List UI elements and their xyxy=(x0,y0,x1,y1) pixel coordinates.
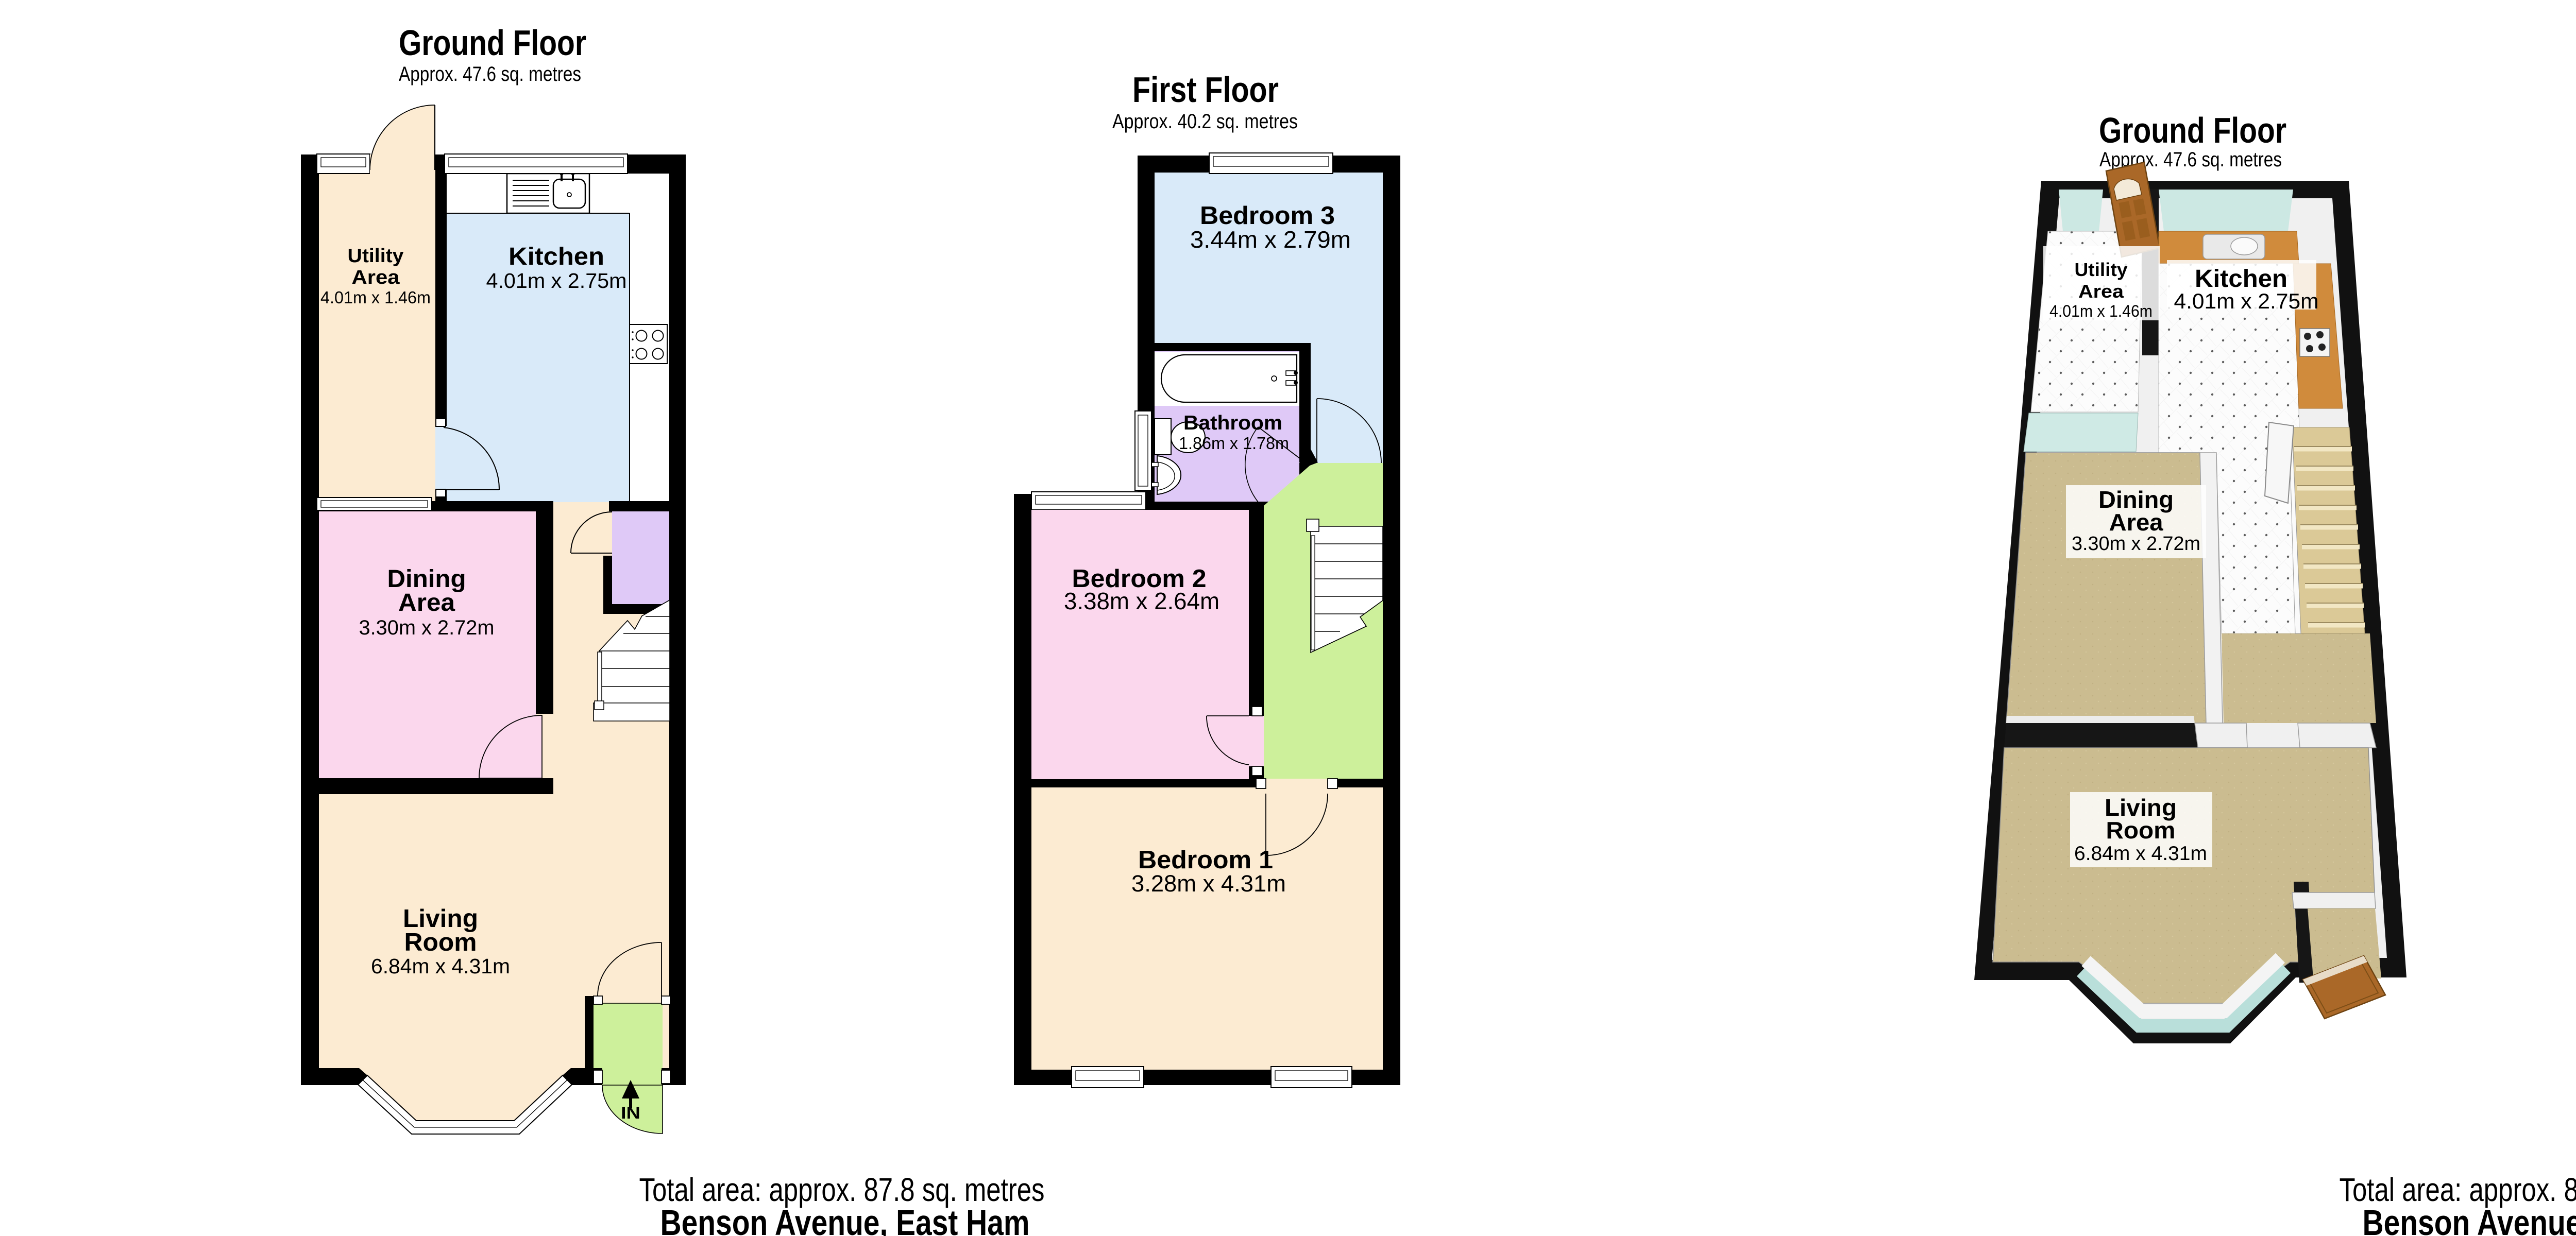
svg-text:Approx. 47.6 sq. metres: Approx. 47.6 sq. metres xyxy=(399,63,581,85)
svg-text:4.01m x 2.75m: 4.01m x 2.75m xyxy=(2174,289,2319,313)
svg-text:6.84m x 4.31m: 6.84m x 4.31m xyxy=(2074,843,2207,865)
svg-text:3.28m x 4.31m: 3.28m x 4.31m xyxy=(1131,870,1286,897)
svg-text:3.44m x 2.79m: 3.44m x 2.79m xyxy=(1190,226,1351,253)
svg-text:3.30m x 2.72m: 3.30m x 2.72m xyxy=(2072,533,2200,555)
svg-text:Benson Avenue, East Ham: Benson Avenue, East Ham xyxy=(660,1203,1030,1236)
svg-text:Room: Room xyxy=(2106,817,2176,844)
svg-text:4.01m x 2.75m: 4.01m x 2.75m xyxy=(486,269,627,293)
svg-text:Area: Area xyxy=(398,589,455,616)
svg-text:Benson Avenue, East Ham: Benson Avenue, East Ham xyxy=(2363,1203,2576,1236)
svg-text:Area: Area xyxy=(352,267,400,288)
svg-text:6.84m x 4.31m: 6.84m x 4.31m xyxy=(371,954,510,978)
svg-text:Ground Floor: Ground Floor xyxy=(2099,110,2286,150)
svg-text:First Floor: First Floor xyxy=(1132,70,1279,110)
svg-text:3.30m x 2.72m: 3.30m x 2.72m xyxy=(359,616,495,639)
svg-text:Approx. 40.2 sq. metres: Approx. 40.2 sq. metres xyxy=(1112,110,1298,133)
svg-text:3.38m x 2.64m: 3.38m x 2.64m xyxy=(1064,588,1219,614)
svg-text:Room: Room xyxy=(404,929,477,956)
svg-text:Area: Area xyxy=(2109,509,2163,536)
svg-text:Bathroom: Bathroom xyxy=(1183,412,1282,434)
svg-text:4.01m x 1.46m: 4.01m x 1.46m xyxy=(320,288,431,307)
svg-text:Ground Floor: Ground Floor xyxy=(399,23,586,63)
svg-text:Utility: Utility xyxy=(348,245,404,267)
svg-text:4.01m x 1.46m: 4.01m x 1.46m xyxy=(2049,302,2153,320)
svg-text:IN: IN xyxy=(621,1104,640,1122)
svg-text:Bedroom 3: Bedroom 3 xyxy=(1200,202,1335,230)
svg-text:Kitchen: Kitchen xyxy=(509,243,604,270)
svg-text:Area: Area xyxy=(2078,281,2124,302)
svg-text:Utility: Utility xyxy=(2075,259,2128,280)
svg-text:Bedroom 1: Bedroom 1 xyxy=(1138,846,1273,874)
svg-text:1.86m x 1.78m: 1.86m x 1.78m xyxy=(1179,434,1289,453)
